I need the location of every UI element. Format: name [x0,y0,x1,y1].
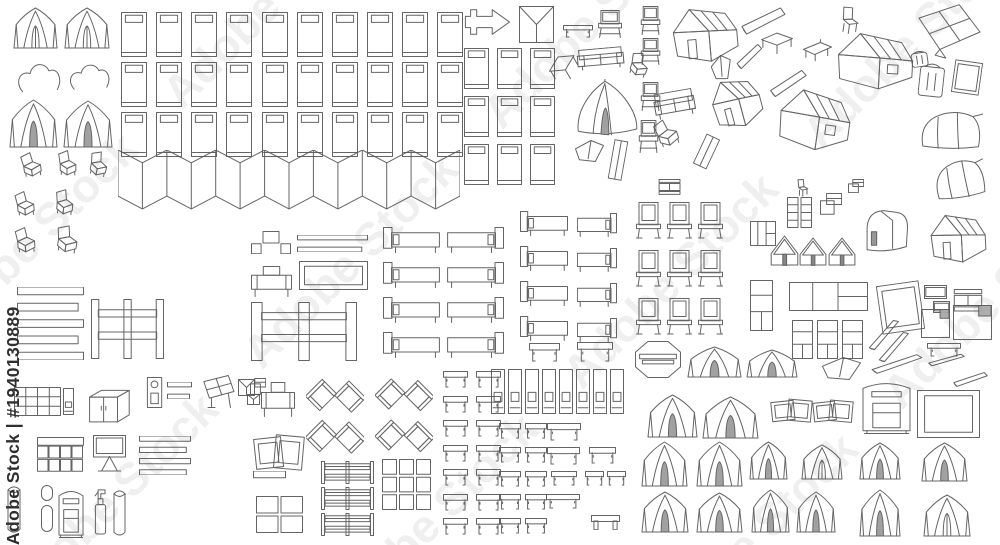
pack-icon [917,62,945,98]
iso-box-icon [238,379,255,396]
table-iso-icon [544,48,583,86]
bed-top-icon [367,112,393,157]
cabin-iso-icon [833,28,916,95]
octagon-table-icon [635,341,681,378]
tent-front-icon [64,7,110,49]
small-table-icon [547,447,580,465]
folding-chair-icon [636,202,661,239]
solar-panel-icon [201,375,236,408]
bed-top-icon [226,12,252,57]
table-rect-icon [933,301,950,313]
tent-front-icon [696,492,743,533]
cabin-iso-icon [668,1,741,69]
beam-icon [767,69,810,98]
locker-icon [508,369,522,414]
sofa-plan-grid-icon [37,437,84,472]
adobe-stock-tile-watermark: Adobe Stock [792,0,1000,158]
small-table-icon [476,469,501,486]
bed-top-icon [530,48,555,89]
cabin-iso-icon [928,210,989,268]
armchair-iso-icon [621,48,655,82]
bed-top-icon [226,112,252,157]
adobe-stock-tile-watermark: Adobe Stock [0,382,228,545]
beam-icon [953,372,989,387]
draped-tent-icon [919,109,983,151]
bed-top-icon [464,96,489,137]
small-table-icon [546,494,580,509]
small-table-icon [589,447,616,464]
folding-chair-icon [698,202,723,239]
bed-top-icon [121,112,147,157]
cylinder-icon [113,490,126,536]
armchair-iso-icon [15,150,47,182]
bed-side-icon [577,213,617,237]
small-table-icon [525,494,547,510]
plank-stack-icon [17,287,84,360]
adobe-stock-tile-watermark: Adobe Stock [232,142,469,379]
bed-top-icon [402,62,428,107]
bed-top-icon [191,112,217,157]
tent-front-icon [63,100,113,148]
bed-top-icon [332,62,358,107]
bench-iso-icon [803,39,832,62]
plank-stack-icon [297,235,368,252]
bench-front-icon [591,515,620,530]
pill-icon [41,485,53,501]
plank-stack-icon [253,471,286,481]
folding-chair-icon [636,250,661,287]
beam-icon [864,318,905,352]
bed-side-icon [383,262,440,288]
folding-chair-icon [636,298,661,335]
bed-top-icon [367,12,393,57]
armchair-iso-icon [647,115,686,154]
tent-front-icon [641,441,688,487]
plank-stack-icon [139,436,191,475]
adobe-stock-tile-watermark: Adobe Stock [872,182,1000,419]
bed-top-icon [191,12,217,57]
bed-top-icon [464,48,489,89]
bed-top-icon [497,96,522,137]
bed-side-icon [577,248,617,272]
wardrobe-iso-icon [86,386,131,423]
adobe-stock-tile-watermark: Adobe Stock [312,402,549,545]
bed-top-icon [121,12,147,57]
folding-chair-icon [667,250,692,287]
bed-side-icon [577,318,617,342]
cloud-icon [16,60,63,96]
pill-icon [41,505,53,532]
bed-top-icon [530,96,555,137]
armchair-iso-icon [82,149,113,182]
bed-top-icon [437,62,463,107]
bed-top-icon [332,12,358,57]
tent-front-icon [921,442,968,482]
cabin-iso-icon [705,69,769,136]
draped-tent-icon [930,154,989,205]
sofa-front-icon [652,88,697,121]
bed-side-icon [383,332,440,358]
iso-box-icon [247,394,260,405]
chair-front-icon [640,38,661,65]
pack-icon [910,50,929,68]
desk-plan-icon [261,382,295,417]
floor-plan-v-icon [842,320,863,359]
bed-top-icon [497,48,522,89]
chair-iso-icon [795,179,810,197]
small-table-icon [443,518,468,535]
box-stack-icon [848,179,864,193]
small-table-icon [529,343,560,362]
chair-iso-icon [835,5,864,36]
porta-toilet-icon [58,489,84,538]
beam-icon [733,43,766,70]
small-table-icon [563,25,593,38]
small-table-icon [499,447,521,463]
small-table-icon [499,471,521,487]
square-grid-icon [256,496,305,535]
picnic-plan-icon [949,289,987,312]
beam-icon [874,330,915,364]
porta-toilet-icon [862,381,911,434]
chair-front-icon [640,6,661,35]
beam-icon [870,353,923,374]
tent-front-icon [9,99,58,148]
small-table-icon [547,423,581,441]
small-table-icon [551,471,577,486]
floor-plan-h-icon [789,282,868,311]
bed-top-icon [262,62,288,107]
bed-top-icon [437,112,463,157]
small-table-icon [499,494,521,510]
tent-front-icon [751,489,790,533]
bed-side-icon [520,211,568,236]
armchair-iso-icon [49,223,84,258]
tarp-icon [575,140,604,162]
tent-front-icon [859,489,901,537]
frame-pair-icon [253,428,305,478]
small-table-icon [443,396,468,413]
bed-side-icon [447,297,504,323]
small-table-icon [476,420,501,437]
monitor-board-icon [93,435,126,472]
switch-panel-icon [146,377,163,408]
arch-hangar-icon [865,207,918,252]
small-table-icon [525,518,547,534]
bed-side-icon [383,227,440,253]
small-table-icon [499,518,521,534]
locker-icon [559,369,573,414]
bed-top-icon [156,62,182,107]
bunk-front-icon [321,487,374,510]
bed-top-icon [530,144,555,185]
stock-image-canvas: Adobe StockAdobe StockAdobe StockAdobe S… [0,0,1000,545]
aframe-hut-icon [770,235,799,266]
bed-top-icon [297,112,323,157]
tarp-icon [709,53,734,81]
tent-front-icon [746,349,798,378]
chair-pair-rot-icon [375,418,433,456]
bed-top-icon [497,144,522,185]
adobe-stock-tile-watermark: Adobe Stock [152,0,389,118]
chair-front-icon [638,120,659,153]
small-table-icon [525,447,547,463]
locker-icon [576,369,590,414]
bed-top-icon [121,62,147,107]
desk-plan-icon [251,266,292,297]
tent-front-icon [859,442,901,480]
small-table-icon [585,471,604,486]
bunk-front-icon [321,461,374,484]
chair-pair-rot-icon [306,377,364,417]
floor-plan-h-icon [750,221,776,246]
tent-34-icon [575,79,640,137]
frame-picture-icon [951,59,983,96]
small-table-icon [927,343,961,357]
armchair-iso-icon [10,226,40,257]
frame-pair-icon [812,396,854,427]
chair-front-icon [640,82,661,111]
tent-front-icon [696,441,743,487]
bed-side-icon [520,281,568,306]
frame-picture-icon [917,390,980,438]
bed-top-icon [226,62,252,107]
table-rect-icon [299,261,368,290]
bunk-front-icon [321,513,374,536]
tent-front-icon [13,7,58,49]
bed-top-icon [297,12,323,57]
table-iso-icon [761,32,793,54]
box-stack-icon [250,378,266,395]
locker-icon [542,369,556,414]
bed-top-icon [297,62,323,107]
bed-top-icon [367,62,393,107]
bed-top-icon [402,12,428,57]
folding-chair-icon [698,298,723,335]
tent-front-icon [923,494,971,537]
small-table-icon [443,469,468,486]
cabin-iso-icon [773,82,857,159]
sofa-front-icon [576,46,625,71]
bed-side-icon [520,316,568,341]
armchair-iso-icon [54,150,80,179]
folding-chair-icon [667,202,692,239]
bed-side-icon [447,262,504,288]
small-table-icon [525,471,547,487]
bed-top-icon [191,62,217,107]
spray-bottle-icon [93,486,108,535]
armchair-iso-icon [50,188,78,219]
tent-front-icon [641,491,689,533]
table-rect-icon [924,285,947,299]
beam-icon [740,7,787,35]
bed-side-icon [577,283,617,307]
bed-top-icon [332,112,358,157]
plank-v-icon [608,139,629,181]
plank-v-icon [693,133,721,169]
small-table-icon [577,342,613,362]
roof-panel-icon [915,3,982,61]
arrow-shape-icon [464,8,511,36]
small-table-icon [499,423,521,439]
tent-front-icon [687,346,742,378]
folding-screen-icon [118,150,460,214]
folding-chair-icon [667,298,692,335]
panel-corner-icon [921,309,950,338]
chair-pair-rot-icon [375,377,433,415]
adobe-stock-tile-watermark: Adobe Stock [472,0,709,138]
small-table-icon [607,471,626,486]
floor-plan-v-icon [817,320,838,359]
bed-side-icon [520,246,568,271]
tarp-icon [822,357,861,380]
adobe-stock-tile-watermark: Adobe Stock [552,162,789,399]
small-table-icon [443,445,468,462]
box-stack-icon [820,193,842,215]
bed-side-icon [447,332,504,358]
armchair-iso-icon [10,190,39,220]
small-table-icon [476,494,501,511]
picnic-plan-icon [655,179,684,195]
small-table-icon [443,420,468,437]
small-table-icon [476,445,501,462]
small-table-icon [476,371,501,388]
chair-front-icon [597,10,623,38]
bed-top-icon [262,12,288,57]
locker-icon [593,369,607,414]
small-table-icon [476,518,501,535]
small-table-icon [525,423,547,439]
bed-side-icon [447,227,504,253]
small-table-icon [443,371,468,388]
frame-pair-icon [770,395,813,427]
iso-box-icon [519,6,554,43]
chair-pair-rot-icon [306,418,364,458]
small-table-icon [476,396,501,413]
bed-top-icon [156,112,182,157]
tent-front-icon [796,491,836,533]
plank-stack-icon [167,382,192,399]
bed-top-icon [464,144,489,185]
bed-top-icon [156,12,182,57]
frame-picture-icon [876,280,925,335]
adobe-stock-tile-watermark: Adobe Stock [632,422,869,545]
beam-icon [928,353,966,366]
cloud-icon [68,61,112,93]
adobe-stock-id-watermark: Adobe Stock | #1940130889 [3,306,24,545]
locker-icon [491,369,505,414]
double-desk-icon [91,299,164,359]
bed-side-icon [383,297,440,323]
locker-icon [610,369,624,414]
panel-corner-icon [953,305,992,340]
floor-plan-v-icon [792,320,813,359]
tent-front-icon [647,394,698,438]
tent-front-icon [801,444,843,480]
bed-top-icon [437,12,463,57]
shelf-pair-icon [787,197,812,228]
floor-plan-v-icon [750,280,773,331]
small-table-icon [443,494,468,511]
folding-chair-icon [698,250,723,287]
aframe-hut-icon [828,237,856,266]
tent-front-icon [702,396,759,439]
double-desk-icon [251,302,357,361]
locker-icon [525,369,539,414]
bed-top-icon [402,112,428,157]
locker-icon [63,388,74,415]
bed-top-icon [262,112,288,157]
square-grid-icon [382,459,433,512]
stool-pair-icon [251,231,291,254]
aframe-hut-icon [799,237,827,266]
tent-front-icon [749,441,788,480]
